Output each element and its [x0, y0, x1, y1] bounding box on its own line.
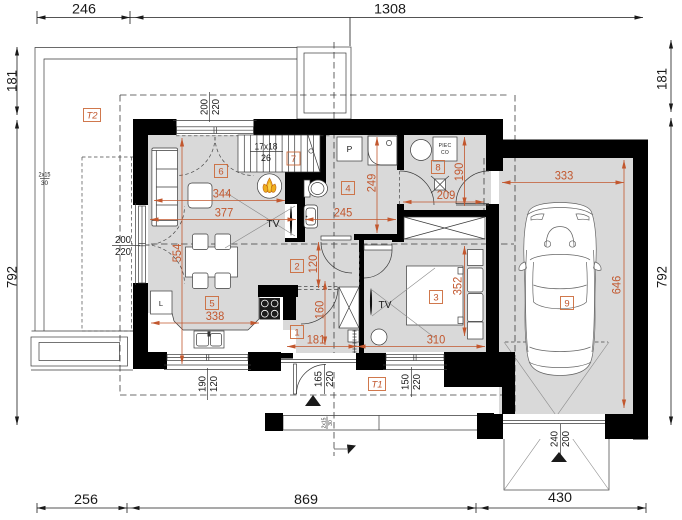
svg-text:2x15: 2x15	[322, 417, 328, 428]
svg-text:1: 1	[294, 328, 299, 339]
svg-text:2x15: 2x15	[39, 173, 52, 179]
svg-text:792: 792	[654, 266, 670, 288]
svg-text:26: 26	[261, 153, 271, 164]
svg-text:4: 4	[345, 184, 350, 195]
svg-text:220: 220	[210, 99, 222, 115]
svg-text:T1: T1	[371, 380, 382, 391]
svg-text:1308: 1308	[374, 1, 406, 17]
svg-text:181: 181	[307, 335, 326, 347]
svg-text:6: 6	[218, 167, 223, 178]
svg-text:344: 344	[213, 189, 232, 201]
svg-text:CO: CO	[441, 150, 449, 156]
svg-text:338: 338	[206, 311, 225, 323]
svg-text:T2: T2	[86, 111, 98, 122]
svg-text:TV: TV	[267, 218, 280, 230]
svg-text:430: 430	[548, 489, 572, 505]
svg-text:352: 352	[453, 277, 465, 296]
svg-text:181: 181	[4, 70, 20, 92]
svg-text:190: 190	[197, 376, 209, 392]
svg-text:246: 246	[72, 1, 96, 17]
svg-text:200: 200	[199, 99, 211, 115]
svg-text:220: 220	[115, 246, 131, 258]
svg-text:310: 310	[427, 335, 446, 347]
svg-text:165: 165	[313, 371, 325, 387]
svg-text:TV: TV	[379, 299, 392, 311]
svg-text:256: 256	[74, 491, 98, 507]
svg-text:200: 200	[560, 431, 572, 447]
svg-text:9: 9	[564, 299, 569, 310]
svg-text:220: 220	[411, 374, 423, 390]
svg-text:3: 3	[433, 293, 438, 304]
svg-text:30: 30	[328, 420, 334, 426]
svg-text:245: 245	[334, 208, 353, 220]
svg-text:333: 333	[555, 171, 574, 183]
svg-text:190: 190	[454, 163, 466, 182]
svg-text:249: 249	[367, 174, 379, 193]
svg-text:240: 240	[549, 431, 561, 447]
svg-text:377: 377	[215, 208, 234, 220]
svg-text:P: P	[347, 144, 353, 154]
svg-text:PIEC: PIEC	[439, 143, 452, 149]
svg-text:792: 792	[4, 266, 20, 288]
svg-text:2: 2	[294, 262, 299, 273]
svg-text:554: 554	[172, 243, 184, 262]
svg-text:646: 646	[612, 276, 624, 295]
svg-text:200: 200	[115, 234, 131, 246]
svg-text:120: 120	[308, 255, 320, 274]
svg-text:30: 30	[41, 181, 49, 187]
svg-text:17x18: 17x18	[255, 142, 278, 153]
svg-text:869: 869	[294, 491, 318, 507]
svg-text:160: 160	[315, 301, 327, 320]
svg-text:150: 150	[400, 374, 412, 390]
svg-text:209: 209	[437, 190, 456, 202]
svg-text:120: 120	[208, 376, 220, 392]
svg-text:7: 7	[291, 154, 296, 165]
svg-text:220: 220	[324, 371, 336, 387]
svg-text:8: 8	[435, 163, 440, 174]
svg-text:L: L	[159, 299, 163, 308]
svg-text:181: 181	[654, 68, 670, 90]
svg-text:5: 5	[209, 299, 214, 310]
